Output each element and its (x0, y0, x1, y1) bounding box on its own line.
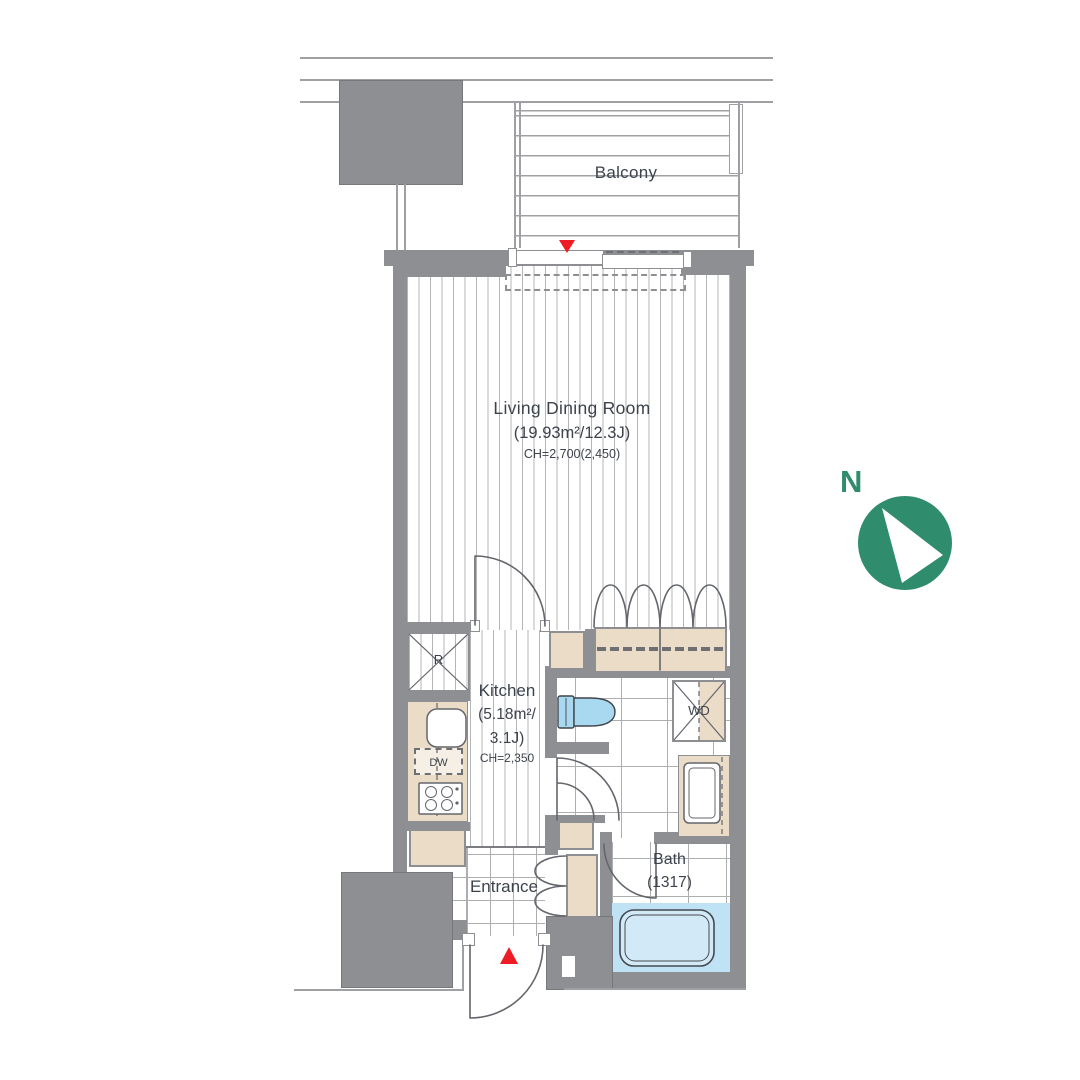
storage-cabinet-left (409, 829, 466, 867)
living-room-ceiling-height: CH=2,700(2,450) (427, 447, 717, 463)
floor-plan: Balcony Living Dining Room (19.93m²/12.3… (0, 0, 1080, 1080)
wall-shoe-left (545, 823, 558, 855)
wall-bath-bottom (600, 972, 746, 988)
kitchen-label-block: Kitchen (5.18m²/ 3.1J) CH=2,350 (452, 680, 562, 766)
wall-kitchen-top (393, 622, 470, 632)
window-panel-left (516, 250, 604, 265)
ldk-door-jamb-left (470, 620, 480, 632)
kitchen-area-line2: 3.1J) (452, 729, 562, 748)
adjacent-structure-block (340, 81, 462, 184)
wall-block-entrance-right (547, 917, 612, 989)
entrance-label: Entrance (448, 876, 560, 897)
living-room-label-block: Living Dining Room (19.93m²/12.3J) CH=2,… (427, 398, 717, 462)
entrance-door-jamb-left (462, 933, 475, 946)
compass-circle-icon (858, 496, 952, 590)
closet-main (594, 627, 727, 673)
shoe-cabinet-upper (558, 821, 594, 850)
living-room-area: (19.93m²/12.3J) (427, 423, 717, 444)
entrance-marker-icon (500, 947, 518, 964)
balcony-rail-inner-line (519, 103, 521, 248)
compass-needle-icon (882, 508, 943, 583)
wall-left (393, 250, 407, 873)
bathtub-zone (612, 903, 730, 972)
ldk-door-jamb-right (540, 620, 550, 632)
wall-notch (562, 956, 575, 977)
shoe-cabinet-tall (566, 854, 598, 918)
entrance-door-swing-arc (470, 945, 543, 1018)
washer-dryer-label: WD (672, 703, 726, 719)
entrance-door-jamb-right (538, 933, 551, 946)
washbasin-area (678, 755, 730, 837)
window-panel-right (602, 254, 684, 269)
living-room-name: Living Dining Room (427, 398, 717, 420)
wall-connector-lines (396, 184, 406, 250)
balcony-label: Balcony (536, 162, 716, 183)
balcony-partition-panel (729, 104, 743, 174)
outline-bottom-right (564, 988, 746, 990)
kitchen-ceiling-height: CH=2,350 (452, 751, 562, 766)
bath-name: Bath (612, 850, 727, 870)
kitchen-name: Kitchen (452, 680, 562, 701)
wall-right (730, 250, 746, 990)
bath-size: (1317) (612, 873, 727, 892)
structure-block-bottom-left (342, 873, 452, 987)
closet-small (549, 631, 585, 670)
compass-north-label: N (840, 464, 880, 500)
outline-left-vertical (462, 941, 464, 991)
window-jamb-right (683, 251, 692, 268)
bath-label-block: Bath (1317) (612, 850, 727, 892)
curtain-box-dashed (505, 274, 686, 291)
refrigerator-label: R (407, 652, 470, 668)
wall-top-ledge-left (406, 266, 506, 277)
site-boundary-line-1 (300, 57, 773, 59)
dishwasher-label: DW (414, 757, 463, 771)
kitchen-area-line1: (5.18m²/ (452, 705, 562, 724)
outline-bottom-left (294, 989, 464, 991)
